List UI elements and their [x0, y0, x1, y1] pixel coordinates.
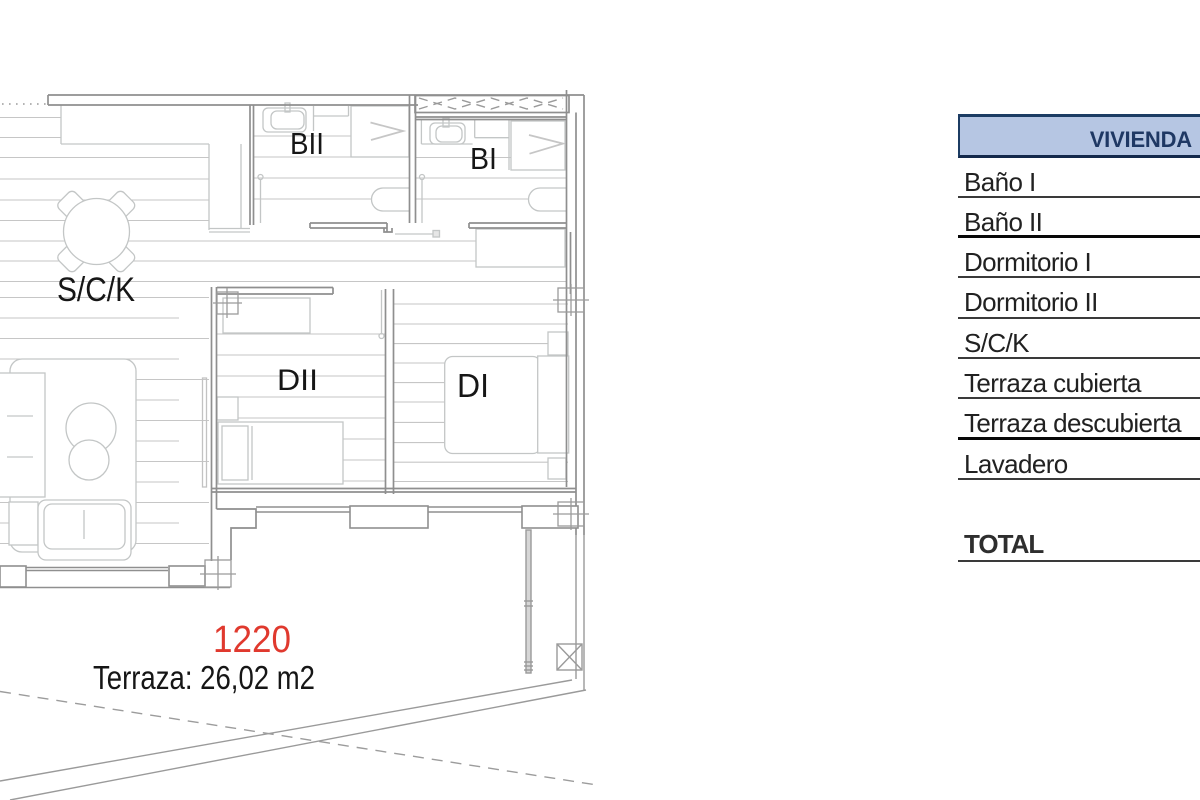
svg-text:BI: BI: [470, 141, 497, 176]
svg-text:DI: DI: [457, 367, 489, 404]
svg-text:DII: DII: [277, 364, 318, 397]
svg-text:1220: 1220: [213, 619, 291, 661]
svg-text:BII: BII: [290, 126, 324, 161]
svg-text:Terraza: 26,02 m2: Terraza: 26,02 m2: [93, 659, 315, 696]
svg-text:S/C/K: S/C/K: [57, 271, 135, 309]
